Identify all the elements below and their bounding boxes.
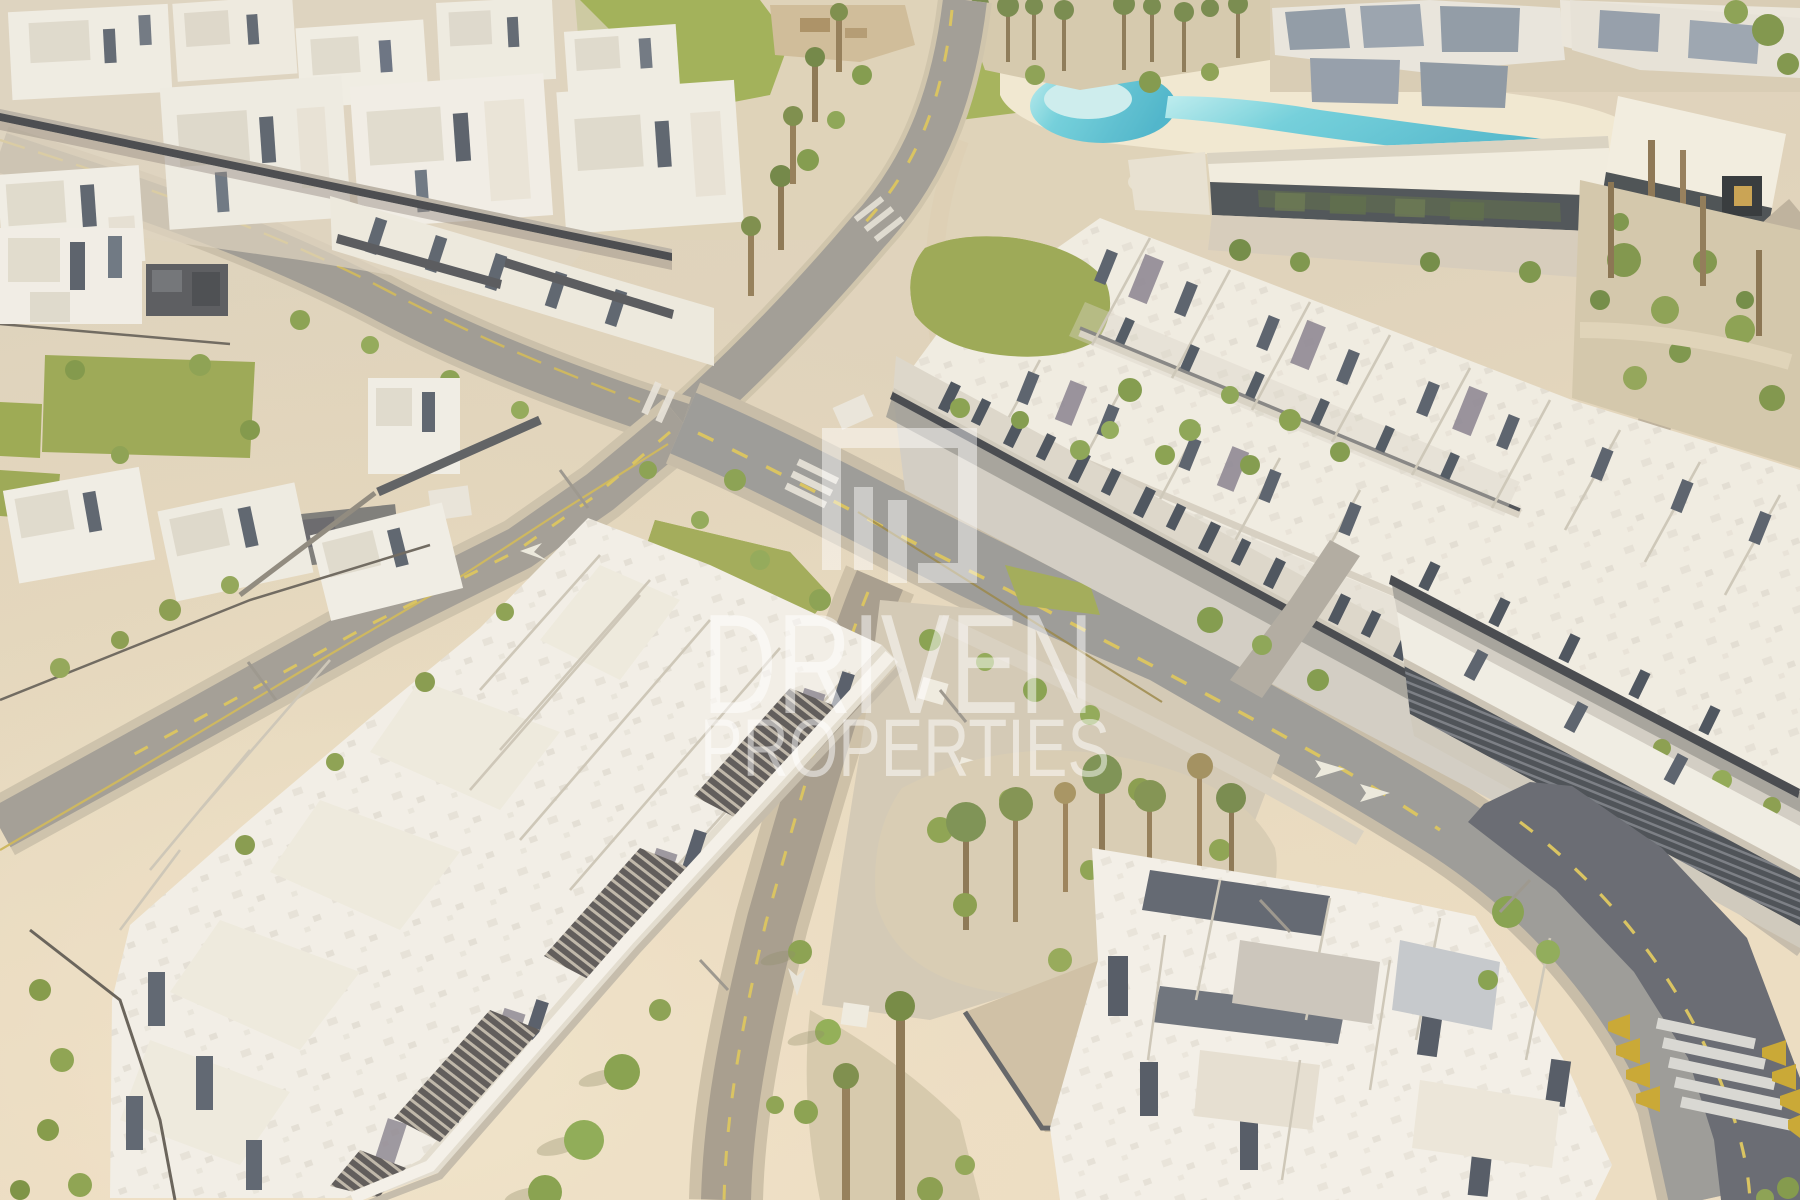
svg-text:PROPERTIES: PROPERTIES [700,703,1110,794]
